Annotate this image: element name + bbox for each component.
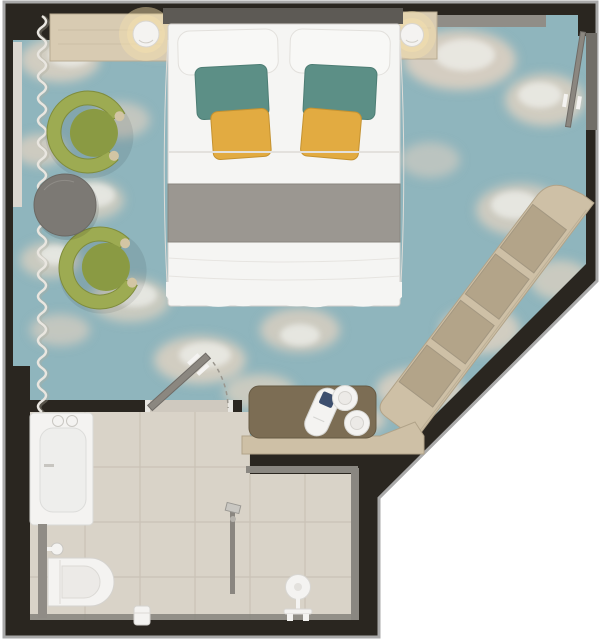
bathtub-basin	[40, 428, 86, 512]
cup-inner	[351, 417, 364, 430]
table-top	[34, 174, 96, 236]
headboard	[163, 8, 403, 24]
lamp-right-shade	[401, 24, 424, 47]
bathtub-tap	[53, 416, 64, 427]
half-wall	[38, 524, 47, 618]
flush-valve-stem	[47, 547, 53, 551]
window-sill	[13, 42, 22, 207]
right-wall-recess	[586, 33, 597, 130]
bathroom-trim-right	[351, 468, 359, 620]
floor-plan	[0, 0, 600, 639]
bed-runner	[168, 184, 400, 242]
bed	[164, 24, 404, 307]
door-jamb-right	[228, 400, 233, 412]
bathtub-handle	[44, 464, 54, 467]
mixer-dial-center	[294, 583, 302, 591]
bed-foot-drape	[166, 282, 402, 307]
bathroom-trim-bottom	[30, 614, 359, 620]
toilet-seat	[62, 566, 100, 598]
cup-inner	[339, 392, 352, 405]
cup-2	[345, 411, 370, 436]
bathtub	[30, 413, 93, 525]
mixer-crossbar	[284, 609, 312, 614]
nightstand-left	[50, 7, 173, 61]
toilet-paper-roll	[134, 606, 150, 625]
mixer-foot	[303, 614, 309, 621]
mixer-foot	[287, 614, 293, 621]
toilet-paper-holder	[134, 606, 150, 625]
cup-1	[333, 386, 358, 411]
bathroom-trim-top	[246, 466, 358, 473]
bathtub-tap	[67, 416, 78, 427]
shower-holder	[230, 516, 236, 522]
